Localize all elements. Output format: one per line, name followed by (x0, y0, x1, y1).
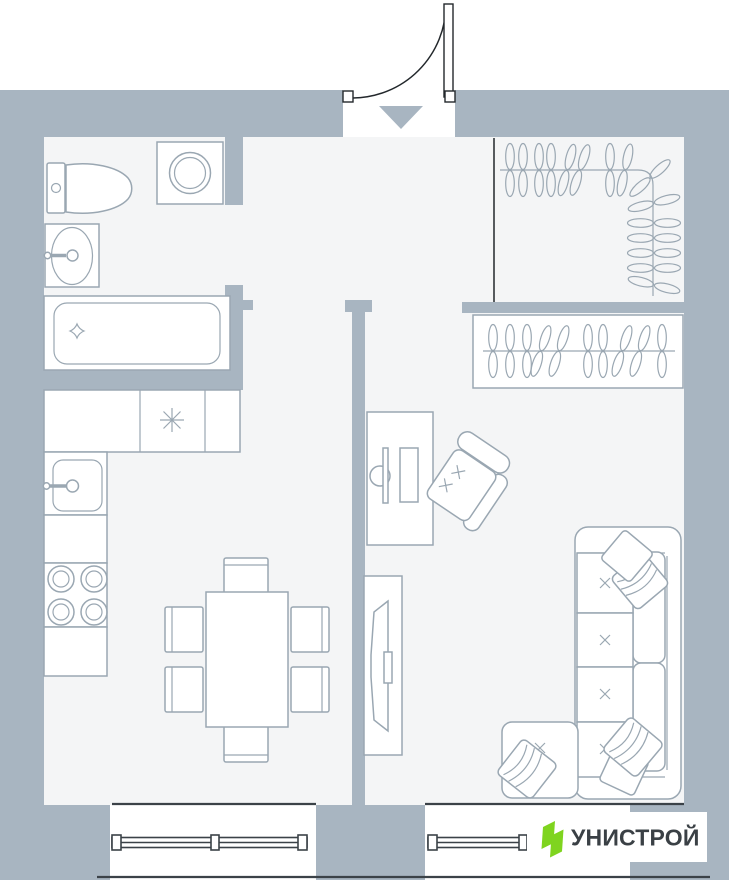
bathroom-wall-upper (225, 137, 243, 205)
wall-right (684, 90, 729, 880)
door-jamb-right (445, 91, 455, 102)
dining-chair (165, 667, 203, 712)
wall-bottom-left (0, 805, 110, 880)
kitchen-cabinet (44, 627, 107, 676)
partition-wall-cap (345, 300, 372, 312)
tv-zone (364, 576, 402, 755)
kitchen-sink-cabinet (43, 452, 107, 515)
door-leaf (444, 4, 453, 97)
window-left (112, 835, 307, 850)
bathtub (44, 296, 230, 370)
kitchen-counter-top (44, 390, 240, 452)
tv-mount-icon (384, 652, 392, 683)
refrigerator-icon (160, 408, 184, 432)
door-swing-arc (353, 5, 446, 98)
kitchen-cabinet (44, 515, 107, 563)
brand-logo: УНИСТРОЙ (527, 812, 707, 862)
bathroom-sink (44, 224, 99, 287)
toilet (47, 163, 132, 213)
dining-chair (291, 667, 329, 712)
partition-wall (352, 312, 365, 805)
cooktop (44, 563, 107, 627)
dining-chair (291, 607, 329, 652)
washing-machine (157, 142, 223, 204)
wardrobe (473, 315, 683, 388)
closet-wall-bottom (462, 302, 684, 313)
wall-left (0, 90, 44, 880)
entry-direction-icon (379, 106, 423, 129)
wall-stub (243, 300, 253, 310)
keyboard-icon (400, 448, 418, 502)
floorplan-page: УНИСТРОЙ (0, 0, 729, 880)
bathroom-wall-bottom (44, 370, 243, 390)
wall-top-left (0, 90, 343, 137)
entry-door (343, 4, 455, 129)
dining-table (206, 592, 288, 727)
wall-bottom-center (316, 805, 425, 880)
dining-chair (165, 607, 203, 652)
door-jamb-left (343, 91, 353, 102)
dining-chair (224, 725, 268, 762)
floorplan-svg: УНИСТРОЙ (0, 0, 729, 880)
dining-chair (224, 558, 268, 594)
logo-text: УНИСТРОЙ (571, 824, 700, 851)
monitor-icon (383, 448, 388, 503)
